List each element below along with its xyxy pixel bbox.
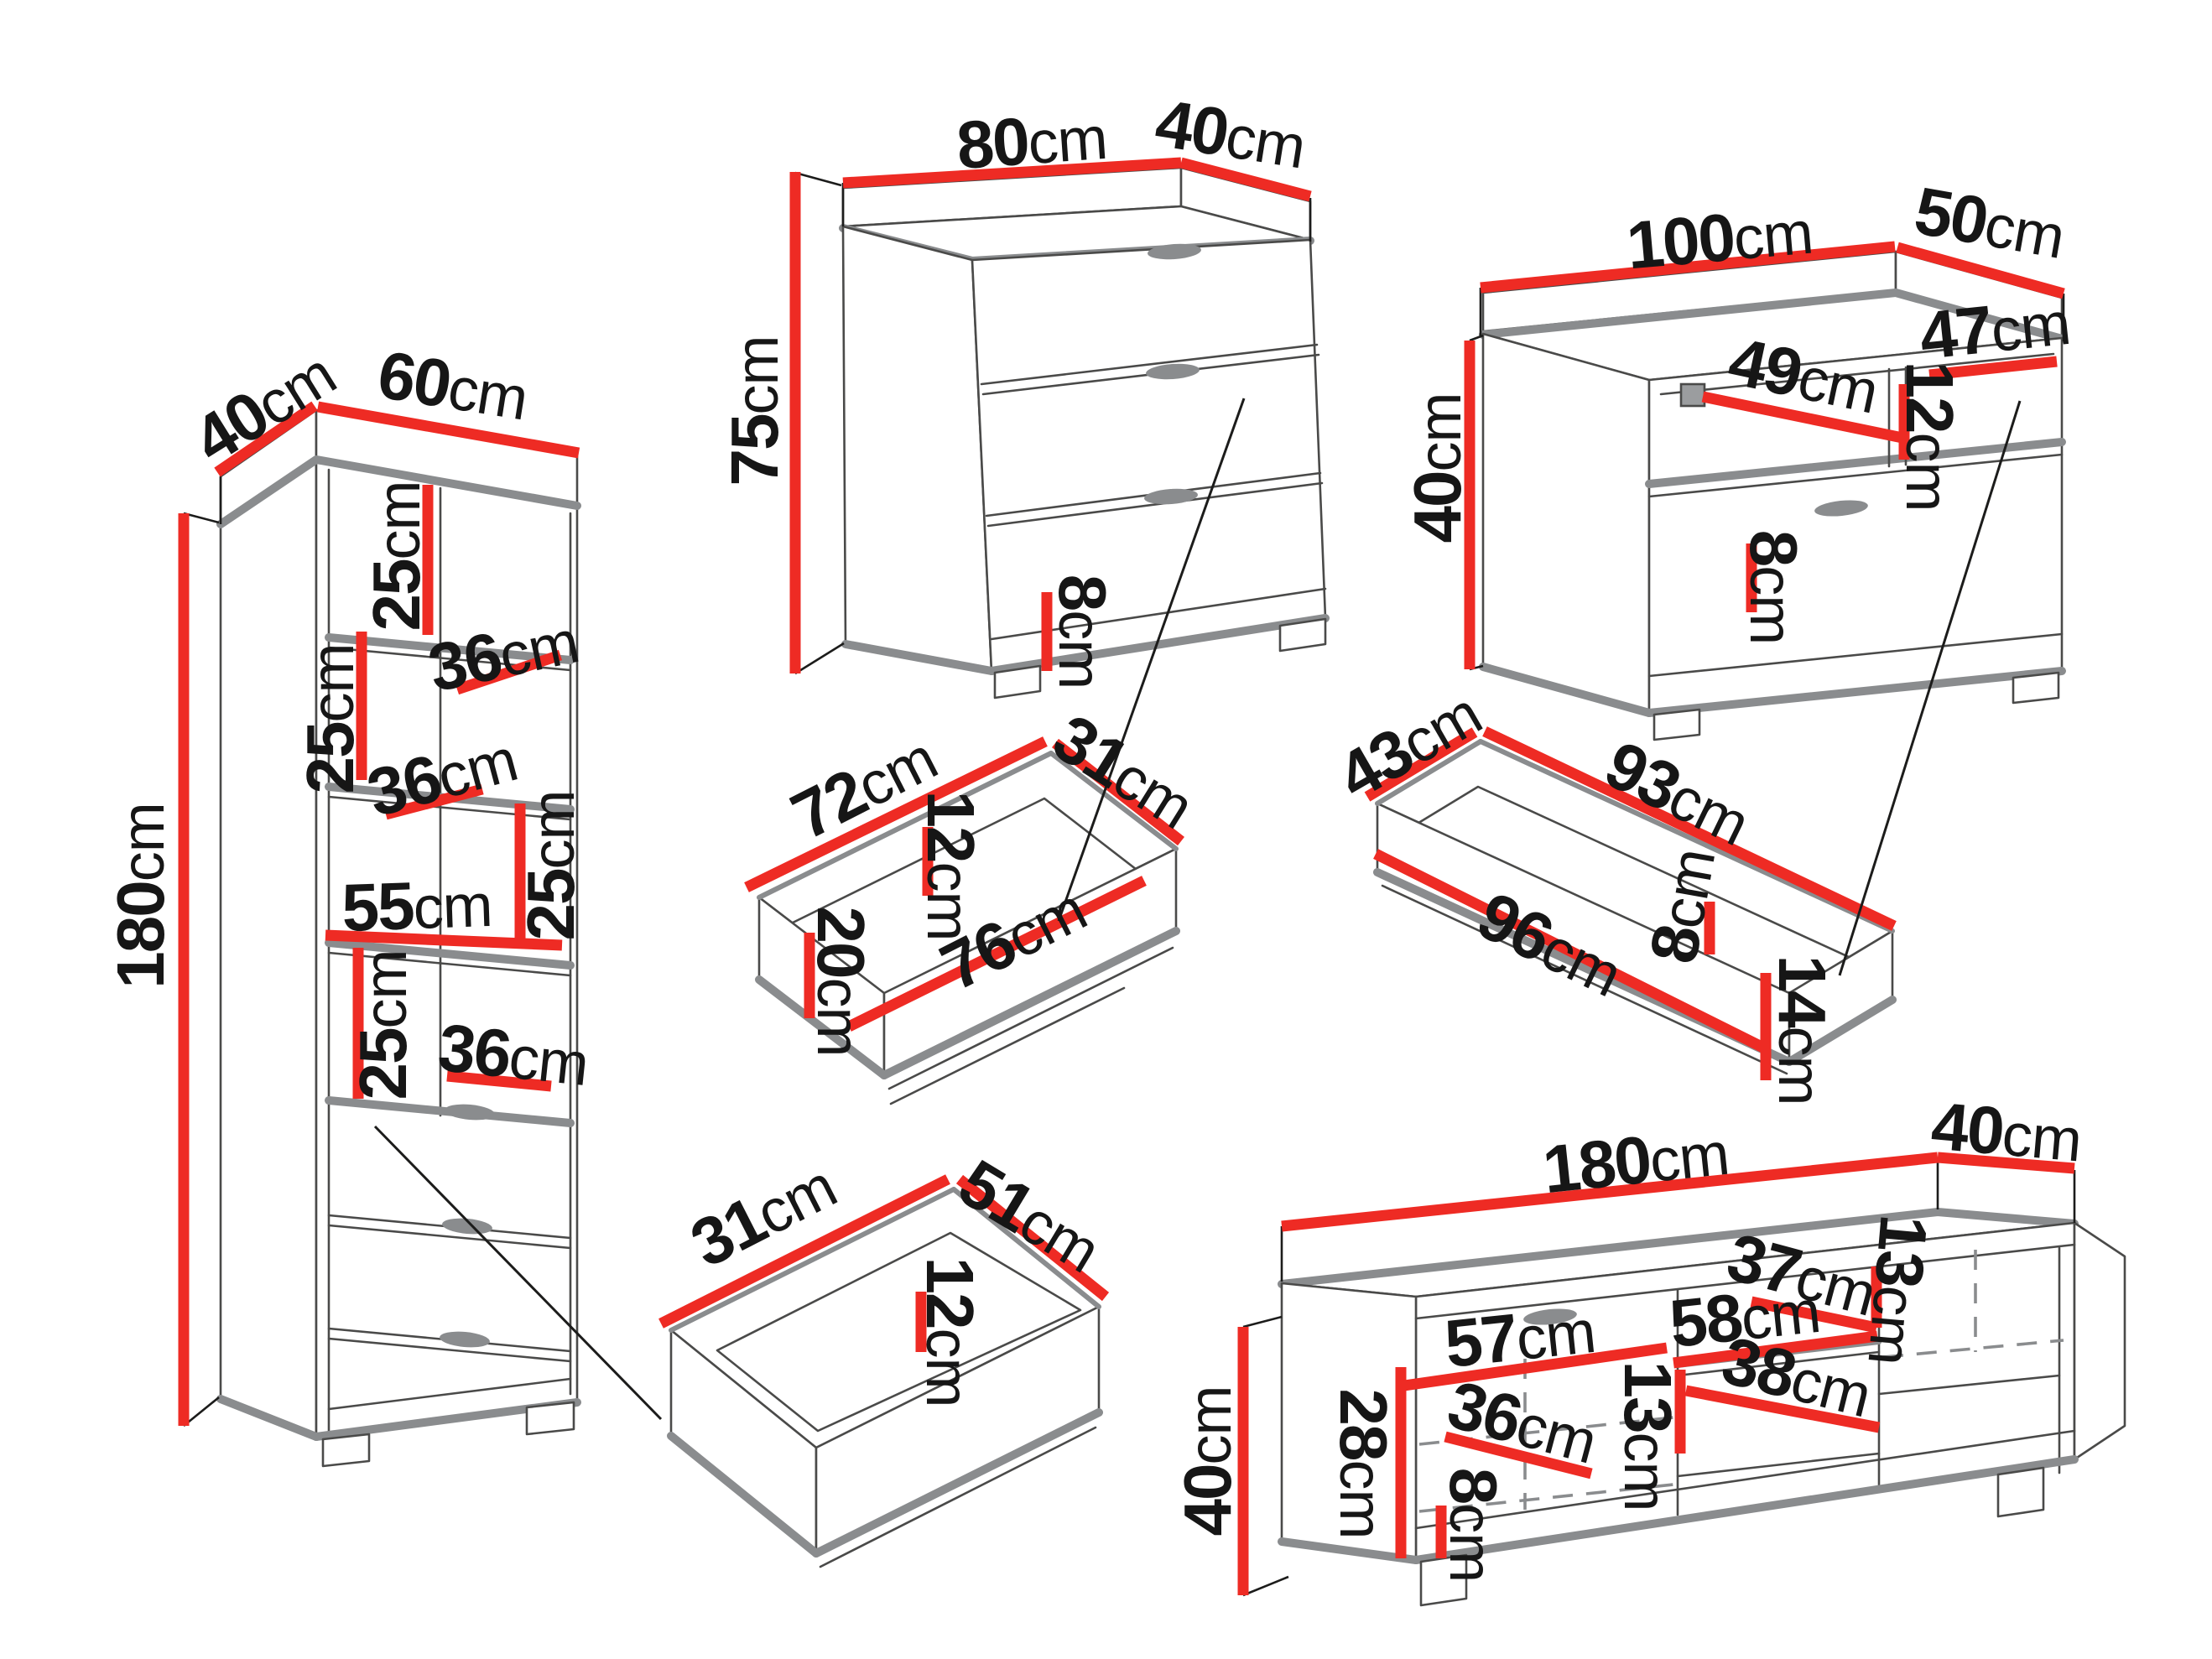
dim-tv-stand-left-width: 57cm [1442,1296,1598,1378]
dim-tv-drawer-front-height: 14cm [1768,955,1835,1105]
dim-tall-cabinet-shelf4-height: 25cm [350,950,417,1100]
dim-tall-cabinet-shelf2-height: 25cm [297,644,364,794]
dim-tall-cabinet-shelf3-height: 25cm [518,791,585,941]
dim-tv-cabinet-width: 100cm [1624,197,1815,280]
dim-chest-drawer-front-height: 20cm [807,907,874,1057]
dim-chest-width: 80cm [955,102,1109,179]
dim-tv-cabinet-plinth-height: 8cm [1740,530,1807,644]
dim-tall-cabinet-shelf1-height: 25cm [363,481,430,632]
dim-tv-cabinet-height: 40cm [1404,393,1471,543]
dim-small-drawer-inner-height: 12cm [916,1257,983,1407]
niche-corner-marker [1681,384,1705,406]
dim-tv-cabinet-niche-width: 47cm [1917,288,2073,370]
dim-tv-stand-niche-height-right: 13cm [1857,1212,1937,1367]
dim-chest-height: 75cm [721,336,789,486]
dim-tv-stand-plinth-height: 8cm [1439,1468,1507,1582]
dim-tv-cabinet-niche-height: 12cm [1896,361,1963,512]
dim-chest-plinth-height: 8cm [1049,575,1116,689]
dim-tv-stand-height: 40cm [1174,1386,1241,1537]
furniture-dimensions-diagram: 40cm 60cm 180cm 25cm 36cm 25cm 36cm 25cm… [0,0,2212,1659]
dim-tv-stand-inner-height: 28cm [1330,1389,1397,1539]
dim-tv-stand-depth: 40cm [1928,1092,2084,1172]
dim-tall-cabinet-inner-width: 55cm [341,870,493,942]
dim-tall-cabinet-height: 180cm [107,803,174,988]
diagram-line-art [0,0,2212,1659]
dim-tv-stand-niche-height-mid: 13cm [1614,1361,1681,1511]
